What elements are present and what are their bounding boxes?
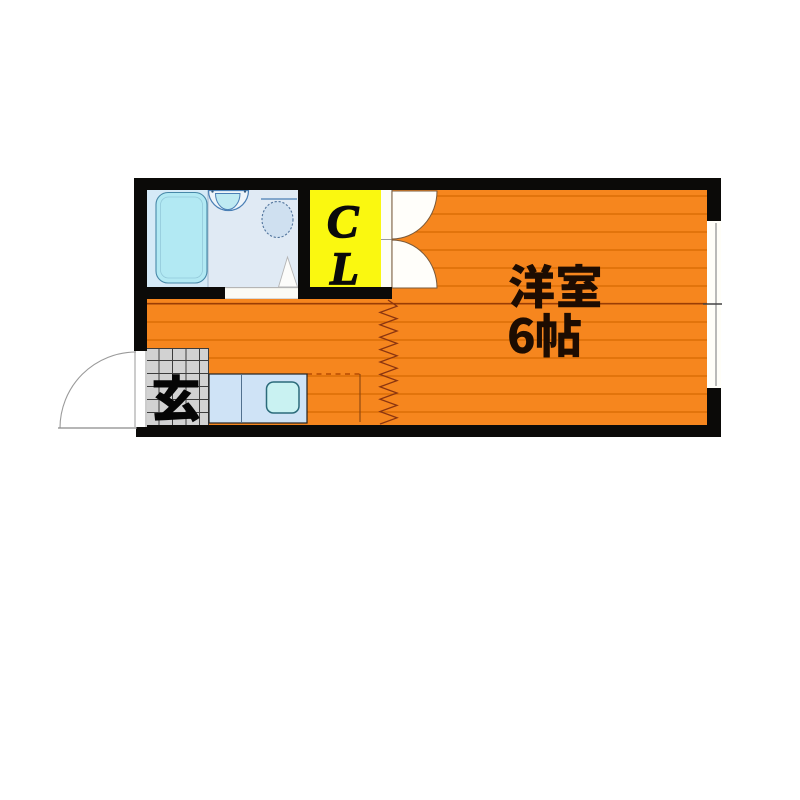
svg-text:C: C [327, 196, 359, 248]
